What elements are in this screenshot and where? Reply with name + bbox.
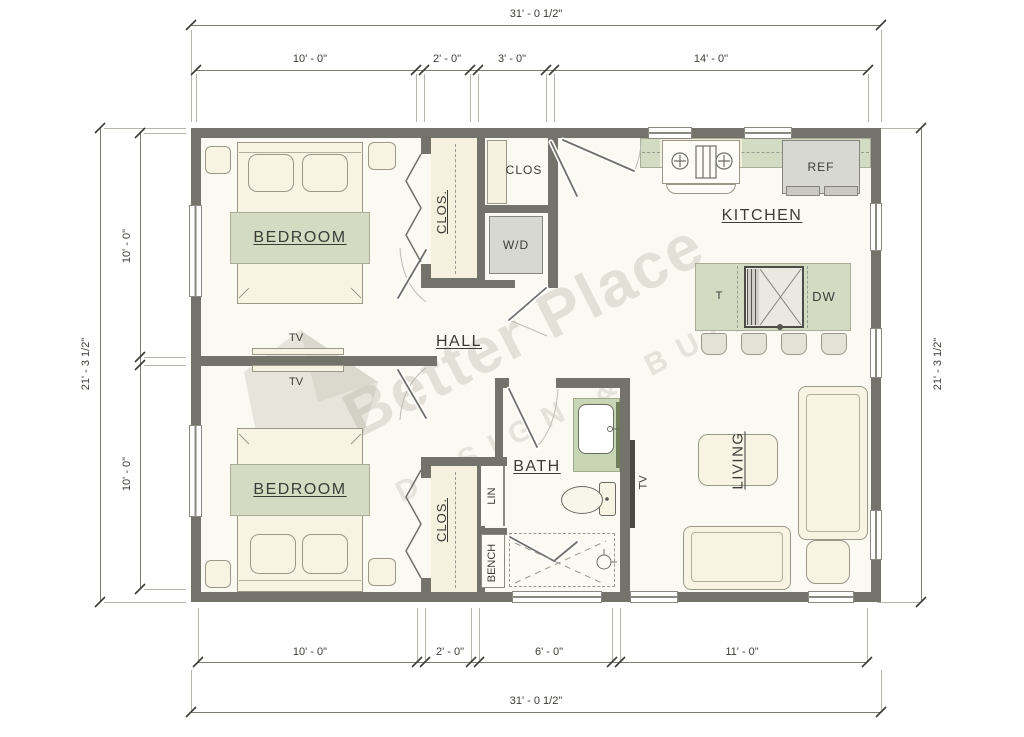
- bar-stool: [741, 333, 767, 355]
- living-label: LIVING: [730, 431, 747, 491]
- tv-bedroom1-label: TV: [281, 332, 311, 345]
- extension-line: [144, 365, 186, 366]
- bedroom2-label: BEDROOM: [253, 482, 346, 498]
- dim-bottom-seg-4: 11' - 0": [712, 646, 772, 658]
- extension-line: [554, 74, 555, 122]
- window-living-bottom-1: [630, 591, 678, 603]
- side-table: [806, 540, 850, 584]
- bath-sink: [578, 404, 614, 454]
- wall-bath-top-b: [556, 378, 630, 388]
- tv-bedroom2-label: TV: [281, 376, 311, 389]
- dim-line-bottom-total: [191, 712, 881, 713]
- window-kitchen-top-1: [648, 127, 692, 139]
- extension-line: [144, 589, 186, 590]
- extension-line: [881, 670, 882, 712]
- hall-label-text: HALL: [436, 334, 482, 350]
- bar-stool: [821, 333, 847, 355]
- dim-bottom-total: 31' - 0 1/2": [476, 695, 596, 707]
- wall-core-left: [477, 138, 485, 288]
- extension-line: [546, 74, 547, 122]
- linen-label: LIN: [485, 476, 499, 516]
- extension-line: [881, 30, 882, 122]
- extension-line: [191, 30, 192, 122]
- wall-bath-left: [495, 388, 503, 460]
- bar-stool: [781, 333, 807, 355]
- dim-top-seg-4: 14' - 0": [681, 53, 741, 65]
- extension-line: [144, 133, 186, 134]
- linen-label-text: LIN: [487, 487, 498, 504]
- tv-bedroom1-label-text: TV: [289, 333, 303, 344]
- pillow: [248, 154, 294, 192]
- dim-bottom-seg-3: 6' - 0": [524, 646, 574, 658]
- extension-line: [478, 74, 479, 122]
- entry-closet-label-text: CLOS: [506, 164, 543, 176]
- trash-label: T: [709, 289, 729, 303]
- bedroom1-blanket: BEDROOM: [230, 212, 370, 264]
- tv-console-bedroom1: [252, 348, 344, 355]
- bench-label-text: BENCH: [487, 544, 498, 583]
- headboard-line: [239, 580, 361, 581]
- dim-top-seg-1: 10' - 0": [280, 53, 340, 65]
- kitchen-label: KITCHEN: [712, 207, 812, 225]
- wall-core-right: [548, 138, 558, 288]
- island-cabinet-dash: [737, 266, 738, 328]
- window-right-middle: [870, 328, 882, 378]
- window-shower-bottom: [512, 591, 602, 603]
- dim-line-left-total: [100, 128, 101, 602]
- refrigerator-handle: [786, 186, 820, 196]
- dim-right-total: 21' - 3 1/2": [932, 314, 944, 414]
- living-label-text: LIVING: [731, 431, 746, 489]
- bench-label: BENCH: [485, 538, 499, 588]
- washer-dryer-unit: W/D: [489, 216, 543, 274]
- window-kitchen-top-2: [744, 127, 792, 139]
- dim-line-right-total: [921, 128, 922, 602]
- extension-line: [104, 128, 186, 129]
- closet1-label: CLOS.: [433, 182, 449, 242]
- extension-line: [620, 608, 621, 662]
- dim-line-left-segments: [140, 133, 141, 589]
- dim-left-total: 21' - 3 1/2": [80, 314, 92, 414]
- bedroom2-blanket: BEDROOM: [230, 464, 370, 516]
- pillow: [302, 534, 348, 574]
- bath-label: BATH: [507, 458, 567, 475]
- nightstand: [205, 146, 231, 174]
- kitchen-label-text: KITCHEN: [722, 208, 803, 224]
- dishwasher-label: DW: [804, 289, 844, 303]
- bath-label-text: BATH: [513, 459, 560, 475]
- nightstand: [368, 142, 396, 170]
- extension-line: [612, 608, 613, 662]
- floor-plan: Better Place DESIGN & BUILD BEDROOM: [0, 0, 1024, 737]
- trash-label-text: T: [716, 291, 723, 302]
- extension-line: [417, 608, 418, 662]
- pillow: [302, 154, 348, 192]
- closet2-label-text: CLOS.: [435, 498, 448, 542]
- dim-line-bottom-segments: [198, 662, 867, 663]
- refrigerator-handle: [824, 186, 858, 196]
- tv-living-screen: [630, 440, 635, 528]
- dim-top-total: 31' - 0 1/2": [476, 8, 596, 20]
- dishwasher-label-text: DW: [812, 290, 836, 303]
- wall-closet1-stub-top: [421, 138, 431, 154]
- stove: [662, 140, 740, 184]
- extension-line: [424, 74, 425, 122]
- bar-stool: [701, 333, 727, 355]
- dim-left-seg-1: 10' - 0": [121, 216, 133, 276]
- wall-wd-bottom: [485, 280, 515, 288]
- shower-floor: [509, 533, 615, 587]
- island-sink-drainboard: [747, 269, 759, 325]
- tv-living-label-text: TV: [639, 475, 650, 489]
- loveseat-seat: [691, 532, 783, 582]
- window-bedroom1-left: [189, 205, 202, 297]
- wall-bath-top-a: [495, 378, 509, 388]
- extension-line: [196, 74, 197, 122]
- dim-line-top-total: [191, 25, 881, 26]
- wall-closet1-bottom: [421, 278, 485, 288]
- window-living-bottom-2: [808, 591, 854, 603]
- dim-left-seg-2: 10' - 0": [121, 444, 133, 504]
- refrigerator-label: REF: [808, 161, 835, 173]
- sofa-right-seat: [806, 394, 860, 532]
- extension-line: [416, 74, 417, 122]
- extension-line: [479, 608, 480, 662]
- extension-line: [877, 602, 921, 603]
- window-living-right: [870, 510, 882, 560]
- washer-dryer-label: W/D: [503, 239, 529, 251]
- closet2-label: CLOS.: [433, 490, 449, 550]
- extension-line: [867, 608, 868, 662]
- extension-line: [198, 608, 199, 662]
- hall-label: HALL: [429, 333, 489, 350]
- window-bedroom2-left: [189, 425, 202, 517]
- entry-closet-label: CLOS: [496, 162, 552, 178]
- nightstand: [205, 560, 231, 588]
- extension-line: [191, 670, 192, 712]
- tv-console-bedroom2: [252, 365, 344, 372]
- wall-closet2-stub-a: [421, 466, 431, 478]
- closet2-rod: [455, 472, 456, 588]
- window-kitchen-right: [870, 203, 882, 251]
- extension-line: [104, 602, 186, 603]
- extension-line: [470, 74, 471, 122]
- dim-top-seg-3: 3' - 0": [487, 53, 537, 65]
- pillow: [250, 534, 296, 574]
- bedroom1-label: BEDROOM: [253, 230, 346, 246]
- wall-closet2-stub-b: [421, 578, 431, 592]
- extension-line: [877, 128, 921, 129]
- dim-bottom-seg-1: 10' - 0": [280, 646, 340, 658]
- wall-bath-living: [620, 378, 630, 592]
- headboard-line: [239, 152, 361, 153]
- tv-living-label: TV: [638, 468, 651, 498]
- extension-line: [144, 357, 186, 358]
- dim-bottom-seg-2: 2' - 0": [425, 646, 475, 658]
- tv-bedroom2-label-text: TV: [289, 377, 303, 388]
- dim-top-seg-2: 2' - 0": [422, 53, 472, 65]
- extension-line: [868, 74, 869, 122]
- oven-front: [666, 184, 736, 194]
- nightstand: [368, 558, 396, 586]
- toilet-bowl: [561, 486, 603, 514]
- dim-line-top-segments: [196, 70, 868, 71]
- closet1-label-text: CLOS.: [435, 190, 448, 234]
- vanity-mirror-strip: [616, 402, 620, 468]
- closet1-rod: [455, 144, 456, 274]
